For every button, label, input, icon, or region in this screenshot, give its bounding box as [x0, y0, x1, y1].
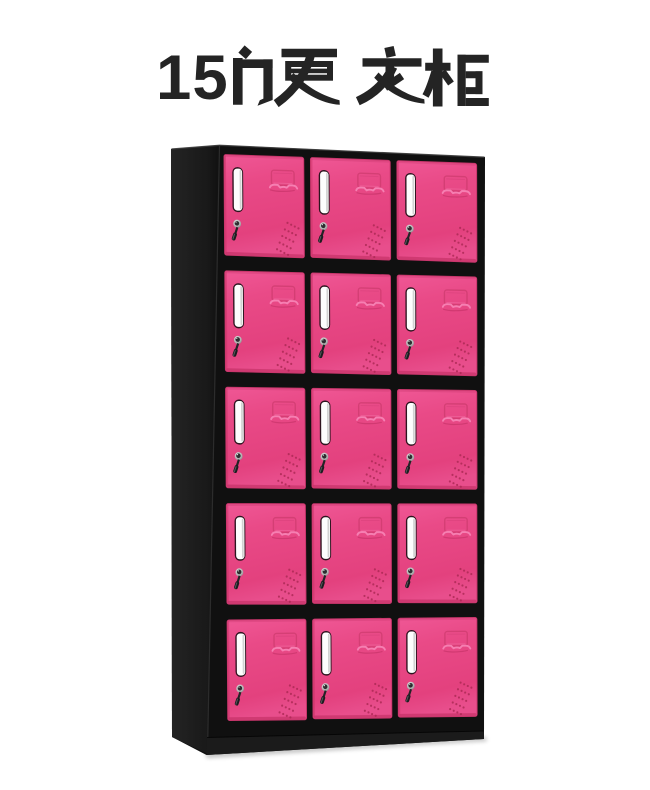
svg-text:15: 15 [156, 43, 229, 113]
